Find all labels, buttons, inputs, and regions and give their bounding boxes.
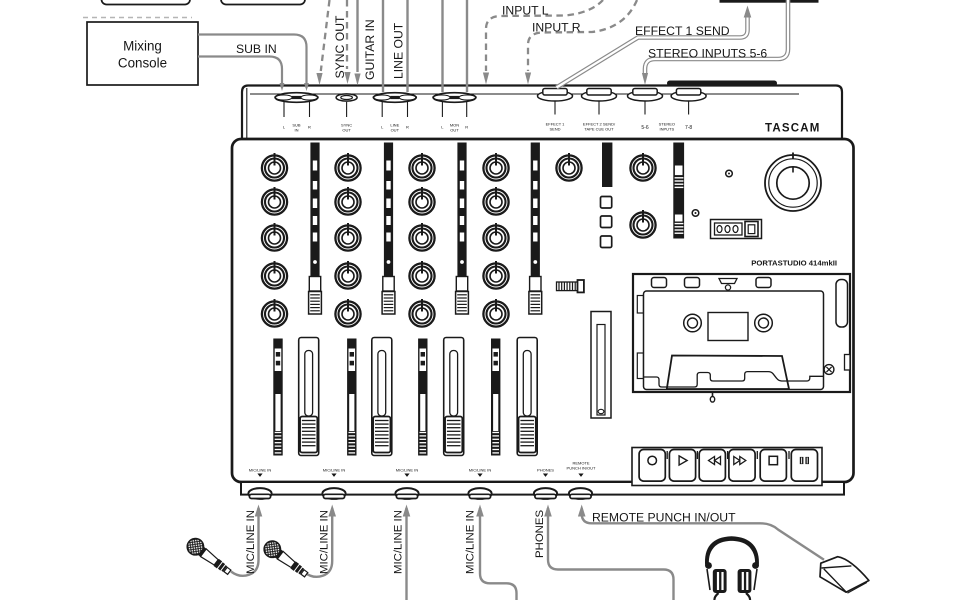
svg-text:MIC/LINE IN: MIC/LINE IN <box>319 510 331 574</box>
svg-text:MIC/LINE IN: MIC/LINE IN <box>396 468 419 473</box>
svg-text:R: R <box>406 125 409 130</box>
svg-text:REMOTE PUNCH IN/OUT: REMOTE PUNCH IN/OUT <box>592 511 736 525</box>
svg-text:7-8: 7-8 <box>685 125 692 131</box>
svg-text:R: R <box>308 125 311 130</box>
svg-text:LINE OUT: LINE OUT <box>392 22 406 79</box>
svg-text:Mixing: Mixing <box>123 39 162 54</box>
svg-text:IN: IN <box>295 128 299 133</box>
svg-text:OUT: OUT <box>342 128 351 133</box>
svg-text:SYNC OUT: SYNC OUT <box>333 15 347 79</box>
svg-text:SEND: SEND <box>549 127 560 132</box>
svg-text:OUT: OUT <box>391 128 400 133</box>
svg-text:PORTASTUDIO 414mkII: PORTASTUDIO 414mkII <box>751 259 837 268</box>
svg-text:TAPE CUE OUT: TAPE CUE OUT <box>584 127 614 132</box>
svg-text:MIC/LINE IN: MIC/LINE IN <box>393 510 405 574</box>
svg-text:STEREO INPUTS 5-6: STEREO INPUTS 5-6 <box>648 47 767 61</box>
svg-text:SUB IN: SUB IN <box>236 42 277 56</box>
svg-text:R: R <box>465 125 468 130</box>
svg-text:PHONES: PHONES <box>537 468 554 473</box>
svg-text:Console: Console <box>118 56 167 71</box>
svg-text:MIC/LINE IN: MIC/LINE IN <box>323 468 346 473</box>
svg-text:MIC/LINE IN: MIC/LINE IN <box>469 468 492 473</box>
svg-text:PHONES: PHONES <box>534 509 546 558</box>
svg-text:INPUT R: INPUT R <box>532 21 581 35</box>
svg-text:MIC/LINE IN: MIC/LINE IN <box>249 468 272 473</box>
svg-text:TASCAM: TASCAM <box>765 123 821 135</box>
svg-text:PUNCH IN/OUT: PUNCH IN/OUT <box>567 466 596 471</box>
svg-text:INPUT L: INPUT L <box>502 4 549 18</box>
svg-text:MIC/LINE IN: MIC/LINE IN <box>465 510 477 574</box>
svg-text:GUITAR IN: GUITAR IN <box>363 19 377 80</box>
svg-text:MIC/LINE IN: MIC/LINE IN <box>245 510 257 574</box>
svg-text:EFFECT 1 SEND: EFFECT 1 SEND <box>635 24 730 38</box>
svg-text:INPUTS: INPUTS <box>659 127 674 132</box>
svg-text:OUT: OUT <box>450 128 459 133</box>
svg-text:5-6: 5-6 <box>641 125 648 131</box>
